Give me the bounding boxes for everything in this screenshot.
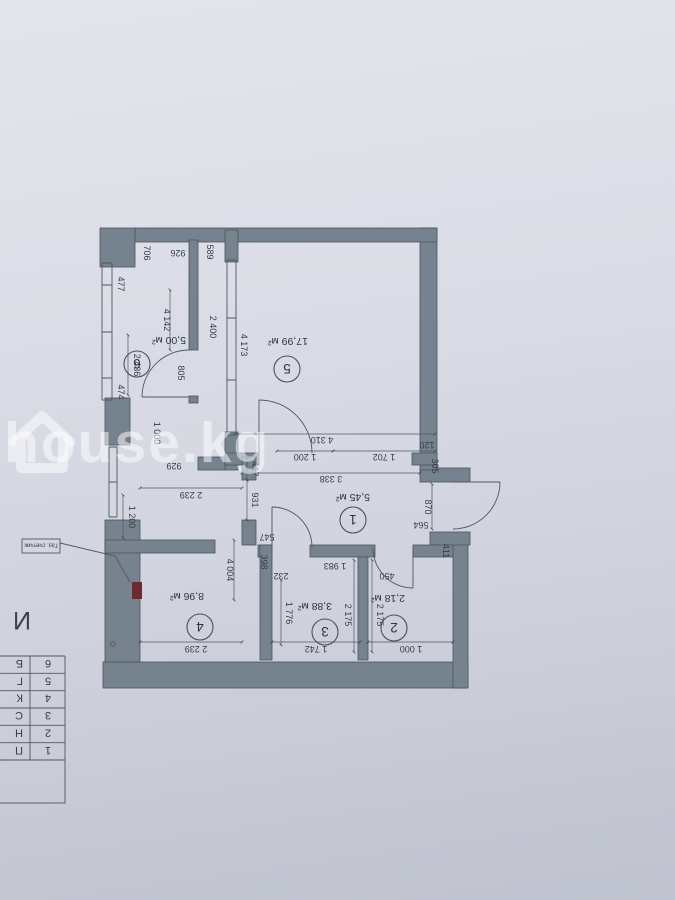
room5-door-arc (259, 400, 312, 453)
dimension-label: 1 200 (294, 452, 317, 462)
dimension-label: 411 (441, 544, 451, 558)
dimension-label: 2 239 (185, 644, 208, 654)
room-number: 6 (133, 356, 141, 371)
dimension-label: 1 000 (400, 644, 423, 654)
legend-row-text: П (15, 744, 23, 756)
legend-row-num: 6 (45, 657, 51, 669)
gas-meter-label: Газ. счетчик (24, 542, 58, 548)
room-number: 1 (349, 512, 357, 527)
dimension-label: 805 (176, 365, 186, 380)
dimension-label: 417 (250, 461, 260, 476)
dimension-label: 477 (116, 276, 126, 291)
legend-row-num: 5 (45, 674, 51, 686)
dimension-label: 1 983 (324, 561, 347, 571)
legend-row-text: К (16, 692, 23, 704)
dimension-label: 474 (116, 384, 126, 399)
legend-row-text: Г (17, 674, 23, 686)
floor-plan-photo: 926 706 589 477 474 2 436 4 142 2 400 4 … (0, 0, 675, 900)
dimension-label: 564 (413, 520, 428, 530)
entrance-door-arc (453, 482, 500, 529)
dimension-label: 4 173 (239, 334, 249, 357)
room-number: 5 (283, 361, 291, 376)
dimension-label: 547 (259, 532, 274, 542)
dimension-label: 3 338 (320, 474, 343, 484)
room-area: 3,88 м² (297, 600, 332, 612)
room-label-5: 5 17,99 м² (268, 335, 308, 382)
room-number: 3 (321, 624, 329, 639)
dimension-label: 1 776 (284, 602, 294, 625)
wc-door-arc (373, 548, 413, 588)
room-area: 5,45 м² (335, 491, 370, 503)
dimension-label: 931 (250, 492, 260, 507)
dimension-label: 450 (379, 571, 394, 581)
dimension-label: 929 (166, 461, 181, 471)
corridor-window (109, 447, 117, 517)
room-area: 8,96 м² (169, 590, 204, 602)
dimension-label: 120 (419, 440, 434, 450)
dimension-label: 232 (273, 571, 288, 581)
legend-row-text: С (15, 709, 23, 721)
floor-plan-drawing: 926 706 589 477 474 2 436 4 142 2 400 4 … (0, 0, 675, 900)
dimension-label: 2 175 (343, 604, 353, 627)
legend-row-text: Н (15, 727, 23, 739)
legend-table: 1 2 3 4 5 6 П Н С К Г Б (0, 656, 65, 803)
cut-off-letter: И (13, 606, 31, 634)
room3-door-arc (272, 507, 312, 547)
legend-row-num: 1 (45, 744, 51, 756)
room-area: 5,00 м² (151, 334, 186, 346)
legend-row-num: 4 (45, 692, 51, 704)
dimension-label: 1 200 (127, 506, 137, 529)
room-area: 17,99 м² (268, 335, 308, 347)
balcony-glazing (102, 263, 112, 400)
legend-row-num: 2 (45, 727, 51, 739)
dimension-label: 2 400 (208, 316, 218, 339)
dimension-label: 1 000 (152, 422, 162, 445)
legend-row-num: 3 (45, 709, 51, 721)
dimension-label: 589 (205, 244, 215, 259)
legend-row-text: Б (16, 657, 23, 669)
gas-meter-mark (132, 582, 142, 599)
dimension-label: 926 (170, 248, 185, 258)
dimension-label: 305 (430, 458, 440, 473)
room-label-3: 3 3,88 м² (297, 600, 338, 645)
dimension-label: 2 239 (180, 490, 203, 500)
dimension-label: 1 702 (373, 452, 396, 462)
room-label-1: 1 5,45 м² (335, 491, 370, 533)
room-label-4: 4 8,96 м² (169, 590, 213, 640)
dimension-label: 870 (423, 499, 433, 514)
room5-window (227, 260, 236, 435)
dimension-label: 398 (259, 554, 269, 569)
rotated-plan-group: 926 706 589 477 474 2 436 4 142 2 400 4 … (0, 228, 500, 803)
legend-grid (0, 656, 65, 760)
dimension-label: 4 142 (162, 309, 172, 332)
dimension-label: 4 310 (311, 435, 334, 445)
room-number: 2 (390, 620, 398, 635)
legend-header-cell (0, 760, 65, 803)
dimension-label: 706 (142, 245, 152, 260)
room-number: 4 (196, 619, 204, 634)
dimension-label: 4 004 (225, 559, 235, 582)
room-area: 2,18 м² (370, 592, 405, 604)
dimension-label: 2 175 (375, 604, 385, 627)
